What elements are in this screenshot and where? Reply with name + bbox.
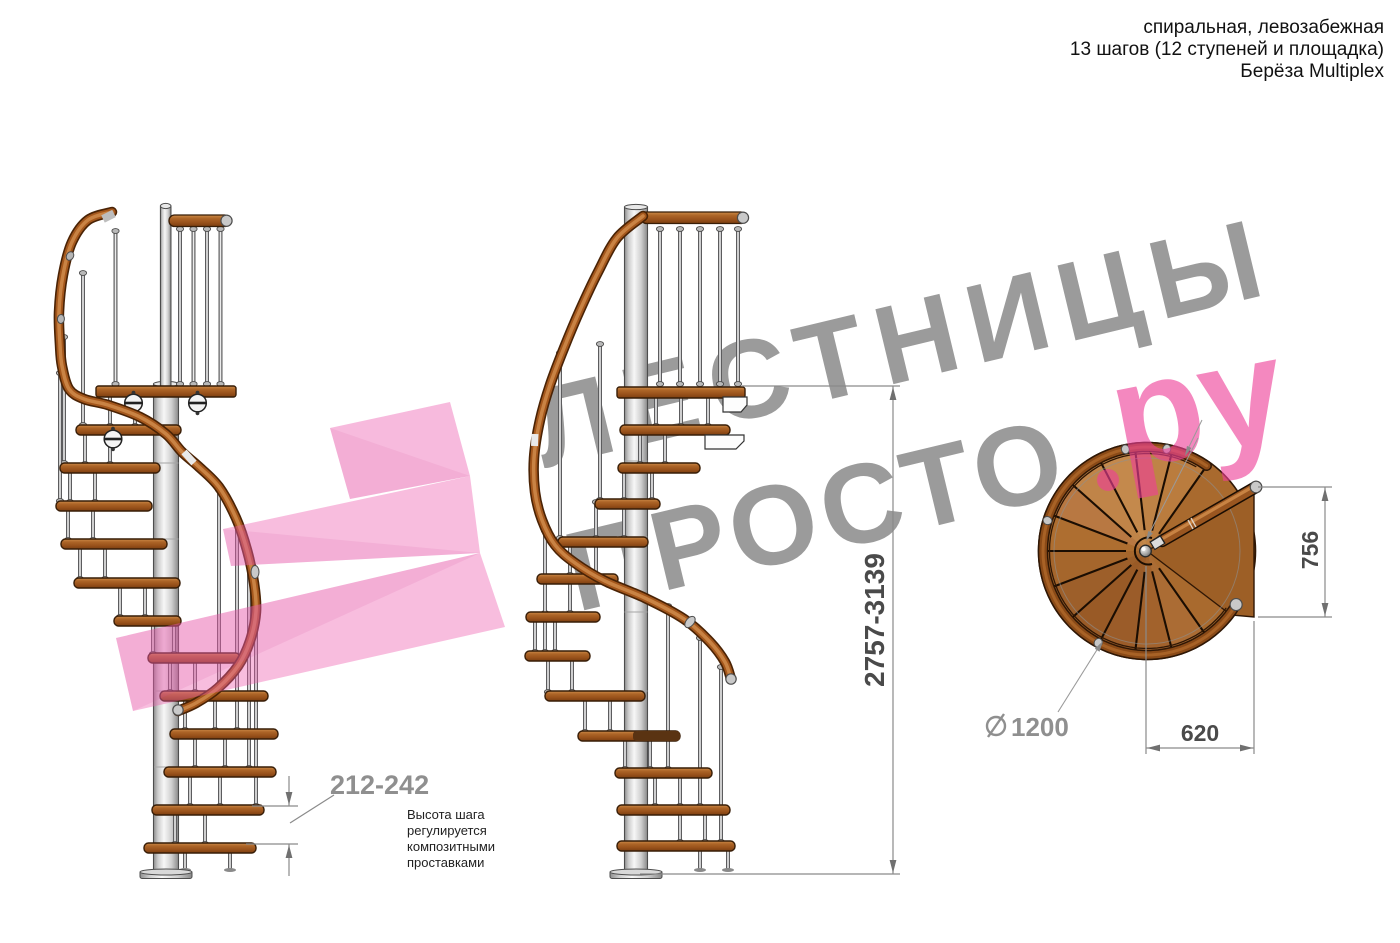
- svg-text:2757-3139: 2757-3139: [859, 553, 890, 687]
- svg-text:композитными: композитными: [407, 839, 495, 854]
- svg-text:13 шагов (12 ступеней и площад: 13 шагов (12 ступеней и площадка): [1070, 39, 1384, 60]
- svg-text:620: 620: [1181, 720, 1219, 746]
- svg-text:спиральная, левозабежная: спиральная, левозабежная: [1143, 17, 1384, 38]
- svg-text:регулируется: регулируется: [407, 823, 487, 838]
- svg-text:1200: 1200: [1011, 712, 1069, 742]
- svg-text:проставками: проставками: [407, 855, 484, 870]
- svg-text:ру: ру: [1096, 303, 1298, 501]
- svg-text:Высота шага: Высота шага: [407, 807, 485, 822]
- svg-text:Берёза Multiplex: Берёза Multiplex: [1240, 61, 1384, 82]
- svg-text:756: 756: [1297, 531, 1323, 569]
- svg-text:212-242: 212-242: [330, 770, 429, 800]
